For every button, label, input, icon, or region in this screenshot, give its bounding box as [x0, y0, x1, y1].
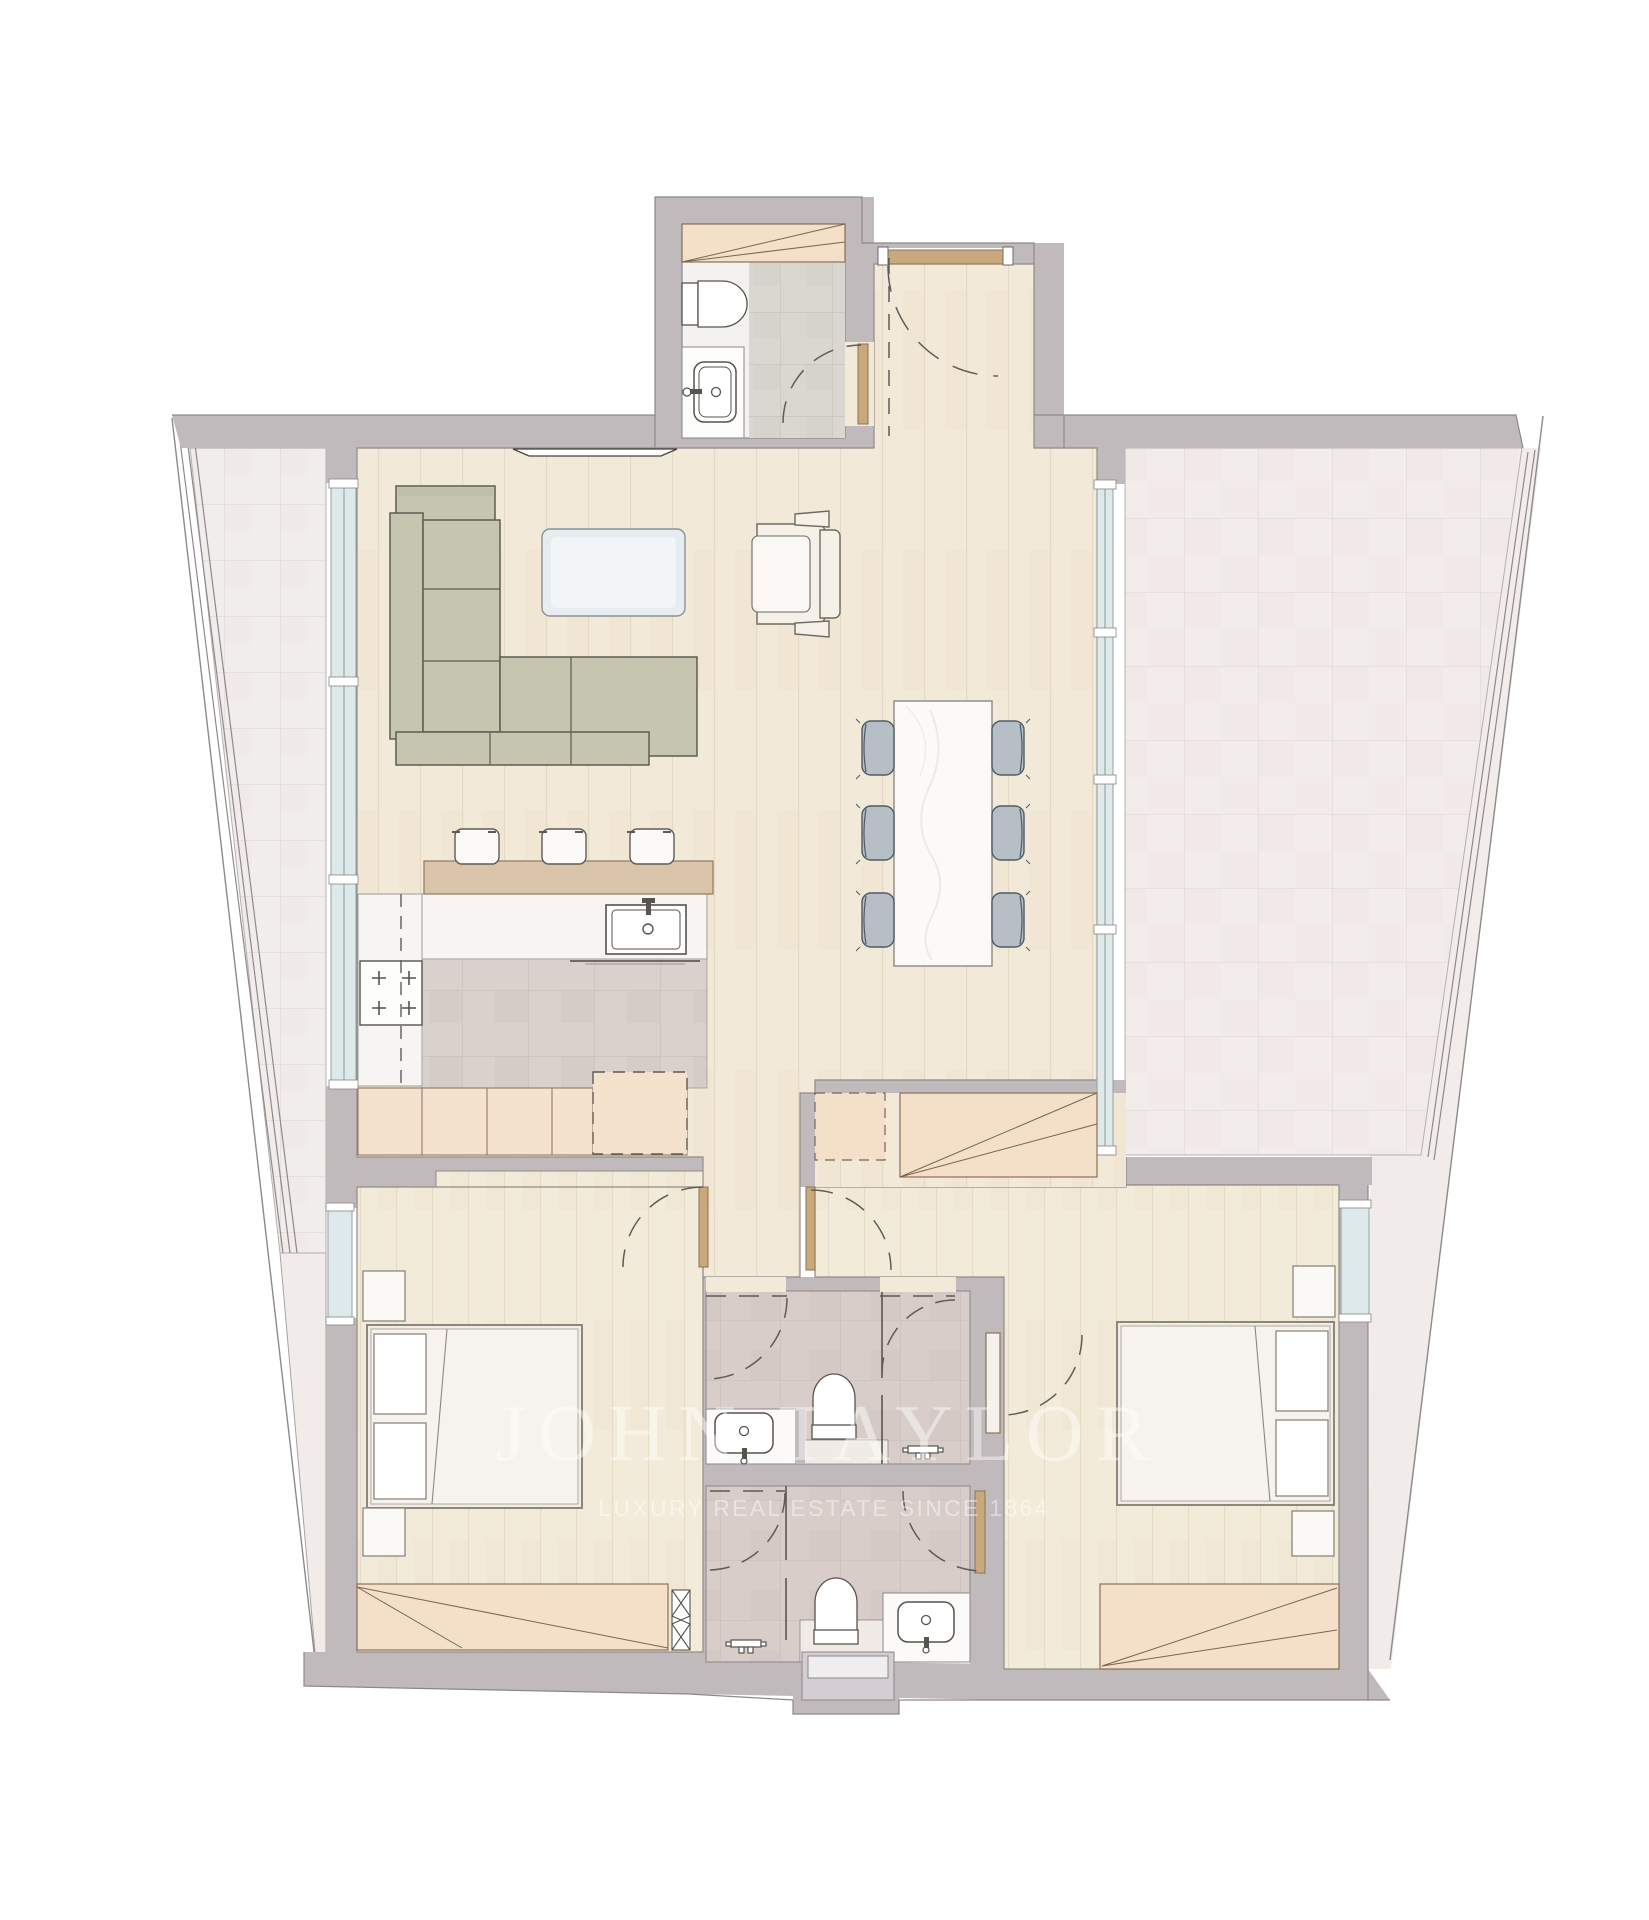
svg-text:JOHN TAYLOR: JOHN TAYLOR — [495, 1390, 1161, 1478]
svg-text:LUXURY REAL ESTATE SINCE 1864: LUXURY REAL ESTATE SINCE 1864 — [598, 1495, 1049, 1521]
